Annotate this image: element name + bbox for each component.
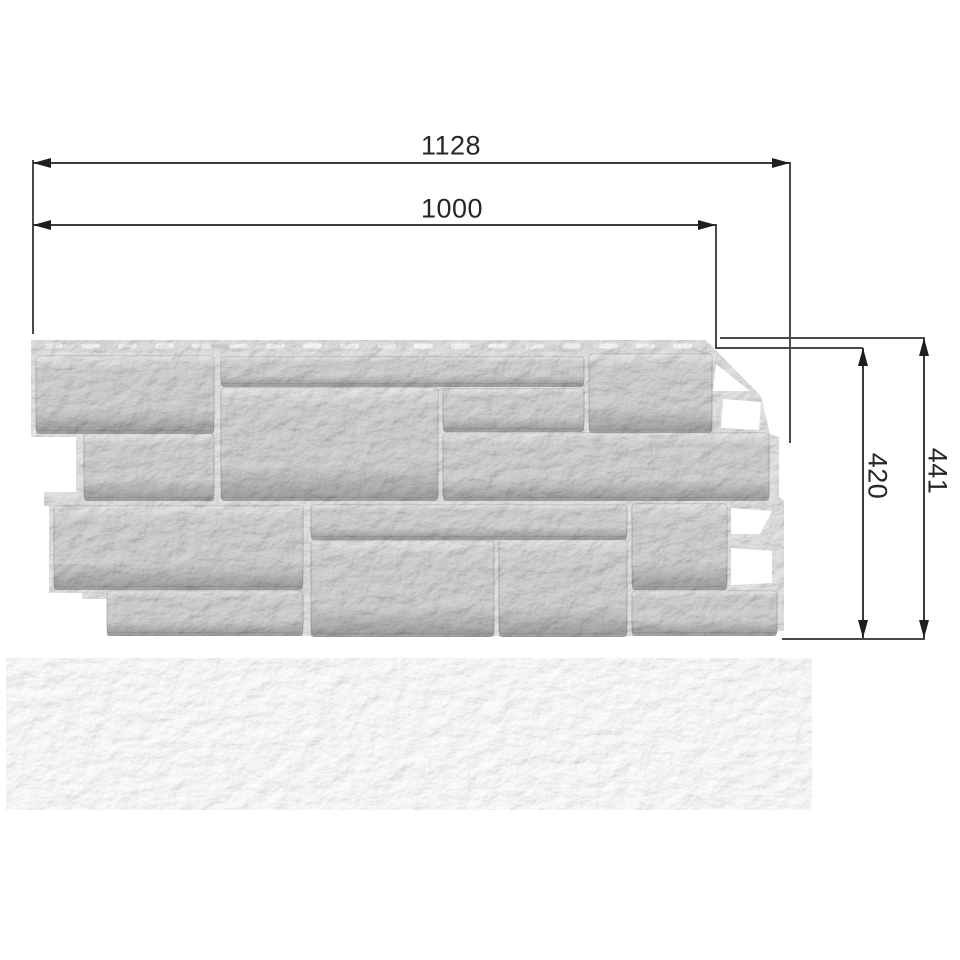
working-height-arrowhead-top — [858, 348, 868, 366]
extension-line-left — [32, 160, 34, 334]
extension-line-top-working-height — [715, 347, 863, 349]
extension-line-right-working-width — [715, 224, 717, 349]
working-width-arrowhead-left — [33, 220, 51, 230]
stone-bevels — [36, 354, 777, 634]
panel-ghost-shadow — [6, 658, 812, 810]
working-height-label: 420 — [864, 453, 891, 500]
dim-line-total-width — [33, 162, 790, 164]
panel-body — [31, 340, 784, 637]
dim-line-working-width — [33, 224, 716, 226]
working-width-label: 1000 — [421, 196, 483, 223]
total-height-label: 441 — [924, 448, 951, 495]
extension-line-bottom — [782, 638, 925, 640]
working-width-arrowhead-right — [698, 220, 716, 230]
nail-hem-slots — [44, 343, 700, 349]
total-height-arrowhead-top — [919, 338, 929, 356]
dimension-drawing-canvas: 1128 1000 420 441 — [0, 0, 960, 960]
total-width-label: 1128 — [421, 133, 481, 160]
total-width-arrowhead-right — [772, 158, 790, 168]
extension-line-top-total-height — [720, 337, 925, 339]
extension-line-right-total-width — [789, 162, 791, 443]
total-height-arrowhead-bottom — [919, 620, 929, 638]
total-width-arrowhead-left — [33, 158, 51, 168]
working-height-arrowhead-bottom — [858, 620, 868, 638]
